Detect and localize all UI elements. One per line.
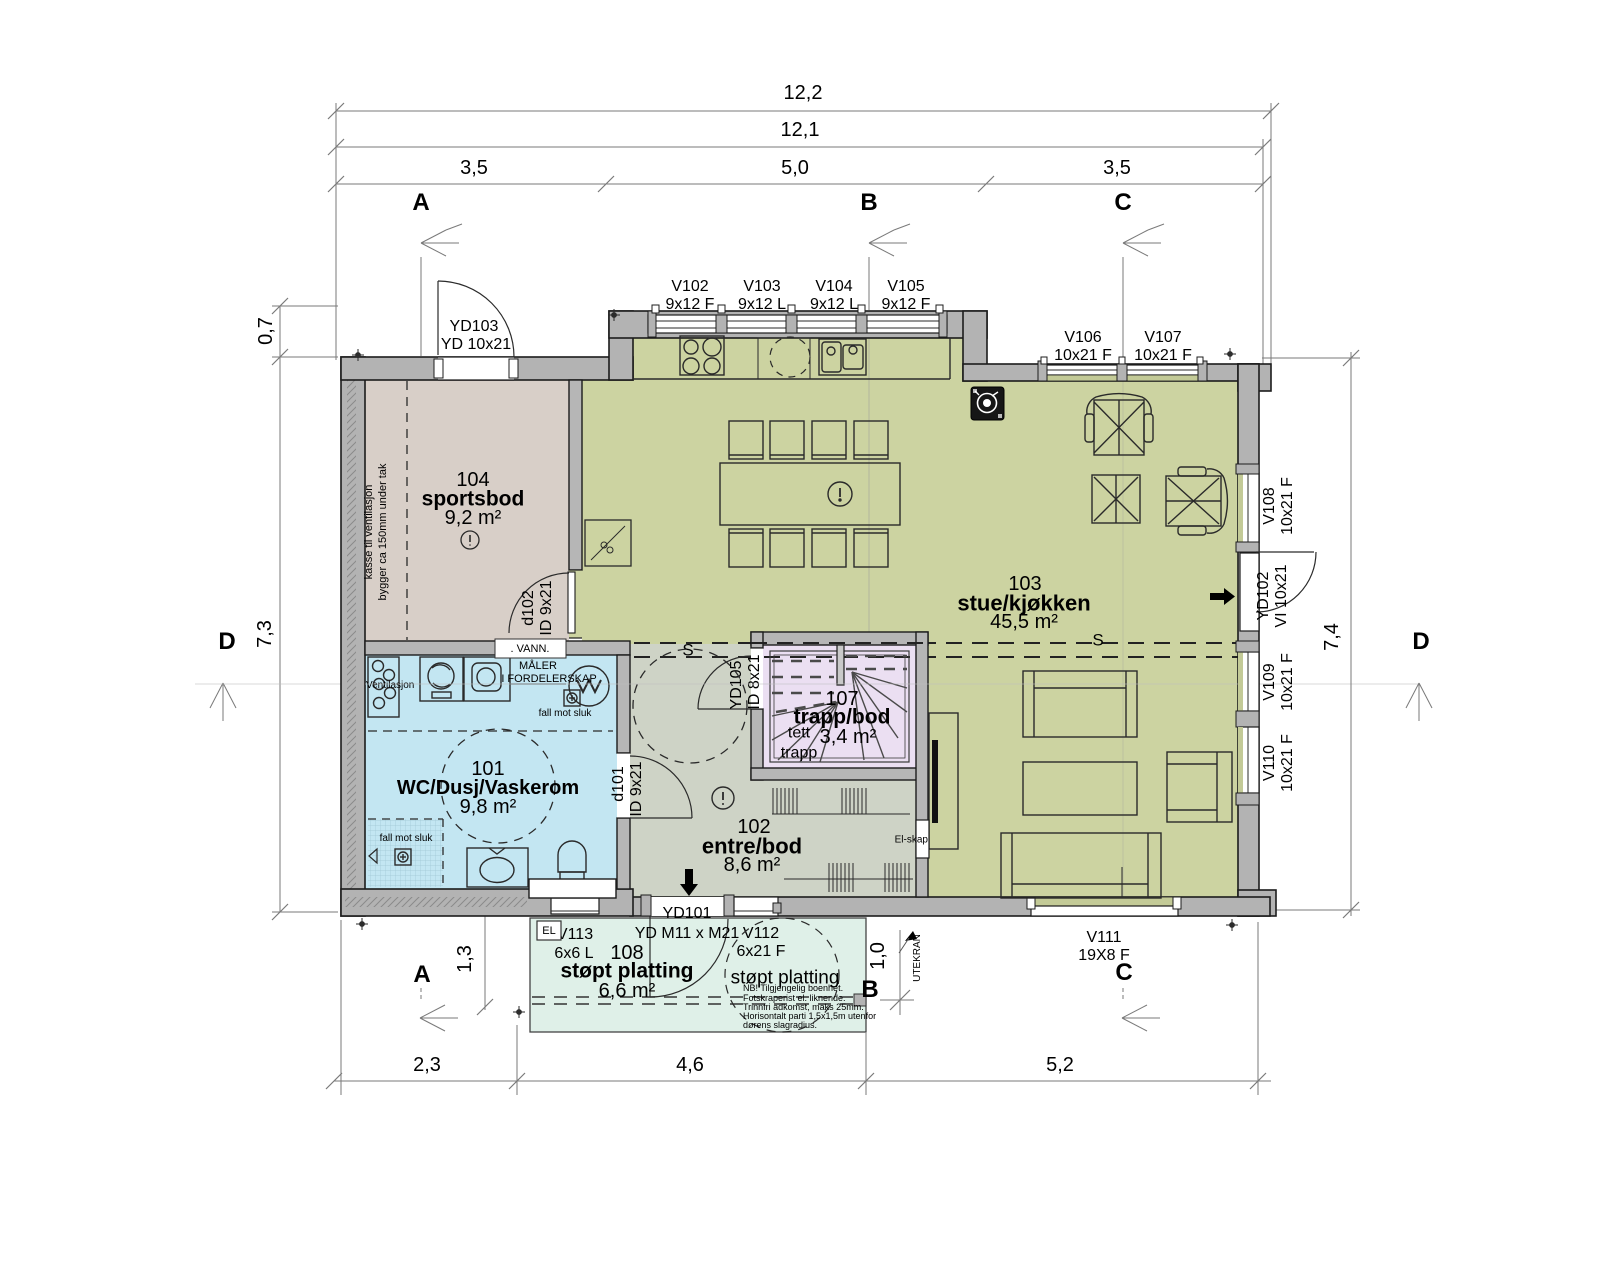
svg-text:3,5: 3,5 (1103, 157, 1131, 179)
svg-text:10x21 F: 10x21 F (1279, 734, 1296, 792)
svg-text:d101: d101 (610, 766, 627, 802)
svg-text:D: D (218, 628, 235, 655)
svg-text:YD101: YD101 (663, 905, 712, 922)
svg-text:fall mot sluk: fall mot sluk (539, 708, 593, 719)
svg-text:10x21 F: 10x21 F (1279, 653, 1296, 711)
svg-text:V105: V105 (887, 278, 924, 295)
svg-text:trapp: trapp (781, 745, 818, 762)
svg-text:1,3: 1,3 (454, 945, 476, 973)
svg-text:6,6 m²: 6,6 m² (599, 980, 656, 1002)
svg-text:d102: d102 (520, 590, 537, 626)
svg-text:. VANN.: . VANN. (511, 643, 550, 655)
svg-text:5,0: 5,0 (781, 157, 809, 179)
svg-text:V111: V111 (1087, 929, 1122, 946)
svg-text:dørens slagradius.: dørens slagradius. (743, 1020, 817, 1030)
svg-text:MÅLER: MÅLER (519, 659, 557, 672)
svg-text:kasse til ventilasjon: kasse til ventilasjon (363, 485, 375, 580)
svg-text:V108: V108 (1261, 487, 1278, 524)
svg-text:B: B (860, 189, 877, 216)
svg-text:V106: V106 (1064, 329, 1101, 346)
svg-text:9x12 L: 9x12 L (810, 296, 858, 313)
svg-text:D: D (1412, 628, 1429, 655)
svg-text:YD102: YD102 (1255, 571, 1272, 620)
svg-text:S: S (682, 641, 693, 660)
svg-text:V102: V102 (671, 278, 708, 295)
svg-text:0,7: 0,7 (255, 317, 277, 345)
svg-text:8,6 m²: 8,6 m² (724, 854, 781, 876)
svg-text:2,3: 2,3 (413, 1054, 441, 1076)
svg-text:VI 10x21: VI 10x21 (1273, 564, 1290, 627)
svg-text:3,5: 3,5 (460, 157, 488, 179)
svg-text:1,0: 1,0 (867, 942, 889, 970)
svg-text:ID 9x21: ID 9x21 (628, 761, 645, 816)
svg-text:NB! Tilgjengelig boenhet.: NB! Tilgjengelig boenhet. (743, 983, 843, 993)
svg-text:9x12 F: 9x12 F (882, 296, 931, 313)
svg-text:C: C (1114, 189, 1131, 216)
svg-text:B: B (861, 976, 878, 1003)
svg-text:YD105: YD105 (728, 660, 745, 709)
svg-text:bygger ca 150mm under tak: bygger ca 150mm under tak (377, 463, 389, 600)
svg-text:19X8 F: 19X8 F (1078, 947, 1130, 964)
svg-text:UTEKRAN: UTEKRAN (912, 934, 923, 982)
svg-text:45,5 m²: 45,5 m² (990, 611, 1058, 633)
svg-text:ID 9x21: ID 9x21 (538, 580, 555, 635)
svg-text:A: A (412, 189, 429, 216)
svg-text:Ventilasjon: Ventilasjon (366, 680, 414, 691)
svg-text:YD 10x21: YD 10x21 (441, 336, 511, 353)
svg-text:10x21 F: 10x21 F (1279, 477, 1296, 535)
svg-text:ID 8x21: ID 8x21 (746, 654, 763, 709)
svg-text:9,8 m²: 9,8 m² (460, 796, 517, 818)
svg-text:V110: V110 (1261, 745, 1278, 781)
svg-text:9x12 F: 9x12 F (666, 296, 715, 313)
svg-text:7,3: 7,3 (254, 620, 276, 648)
svg-text:12,1: 12,1 (781, 119, 820, 141)
svg-text:V113: V113 (557, 926, 593, 943)
svg-text:9x12 L: 9x12 L (738, 296, 786, 313)
svg-text:7,4: 7,4 (1321, 623, 1343, 651)
svg-text:9,2 m²: 9,2 m² (445, 507, 502, 529)
svg-text:tett: tett (788, 725, 811, 742)
svg-text:V109: V109 (1261, 663, 1278, 700)
svg-text:4,6: 4,6 (676, 1054, 704, 1076)
svg-text:V112: V112 (743, 925, 779, 942)
svg-text:3,4 m²: 3,4 m² (820, 726, 877, 748)
svg-text:V107: V107 (1144, 329, 1181, 346)
svg-text:EL: EL (542, 925, 555, 937)
svg-text:10x21 F: 10x21 F (1054, 347, 1112, 364)
svg-text:S: S (1092, 631, 1103, 650)
svg-text:5,2: 5,2 (1046, 1054, 1074, 1076)
svg-text:YD103: YD103 (450, 318, 499, 335)
svg-text:A: A (413, 961, 430, 988)
svg-text:6x21 F: 6x21 F (737, 943, 786, 960)
svg-text:fall mot sluk: fall mot sluk (380, 833, 434, 844)
svg-text:12,2: 12,2 (784, 82, 823, 104)
svg-text:V104: V104 (815, 278, 852, 295)
svg-text:10x21 F: 10x21 F (1134, 347, 1192, 364)
svg-text:V103: V103 (743, 278, 780, 295)
svg-text:I FORDELERSKAP: I FORDELERSKAP (501, 673, 596, 685)
svg-text:YD M11 x M21: YD M11 x M21 (635, 925, 740, 942)
svg-text:El-skap: El-skap (895, 835, 929, 846)
